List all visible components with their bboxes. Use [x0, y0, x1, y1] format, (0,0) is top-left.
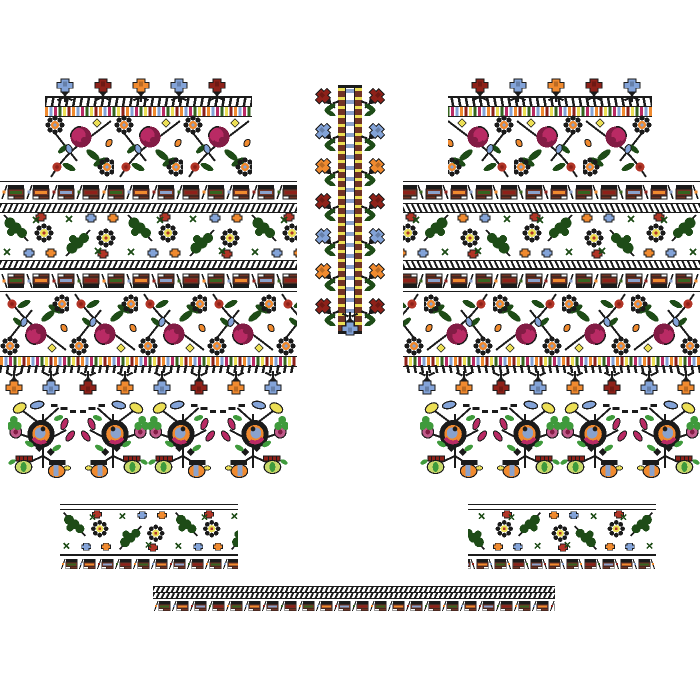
hem-strip: [153, 586, 555, 614]
hem-border-strip: [0, 0, 700, 700]
embroidery-sheet: [0, 0, 700, 700]
